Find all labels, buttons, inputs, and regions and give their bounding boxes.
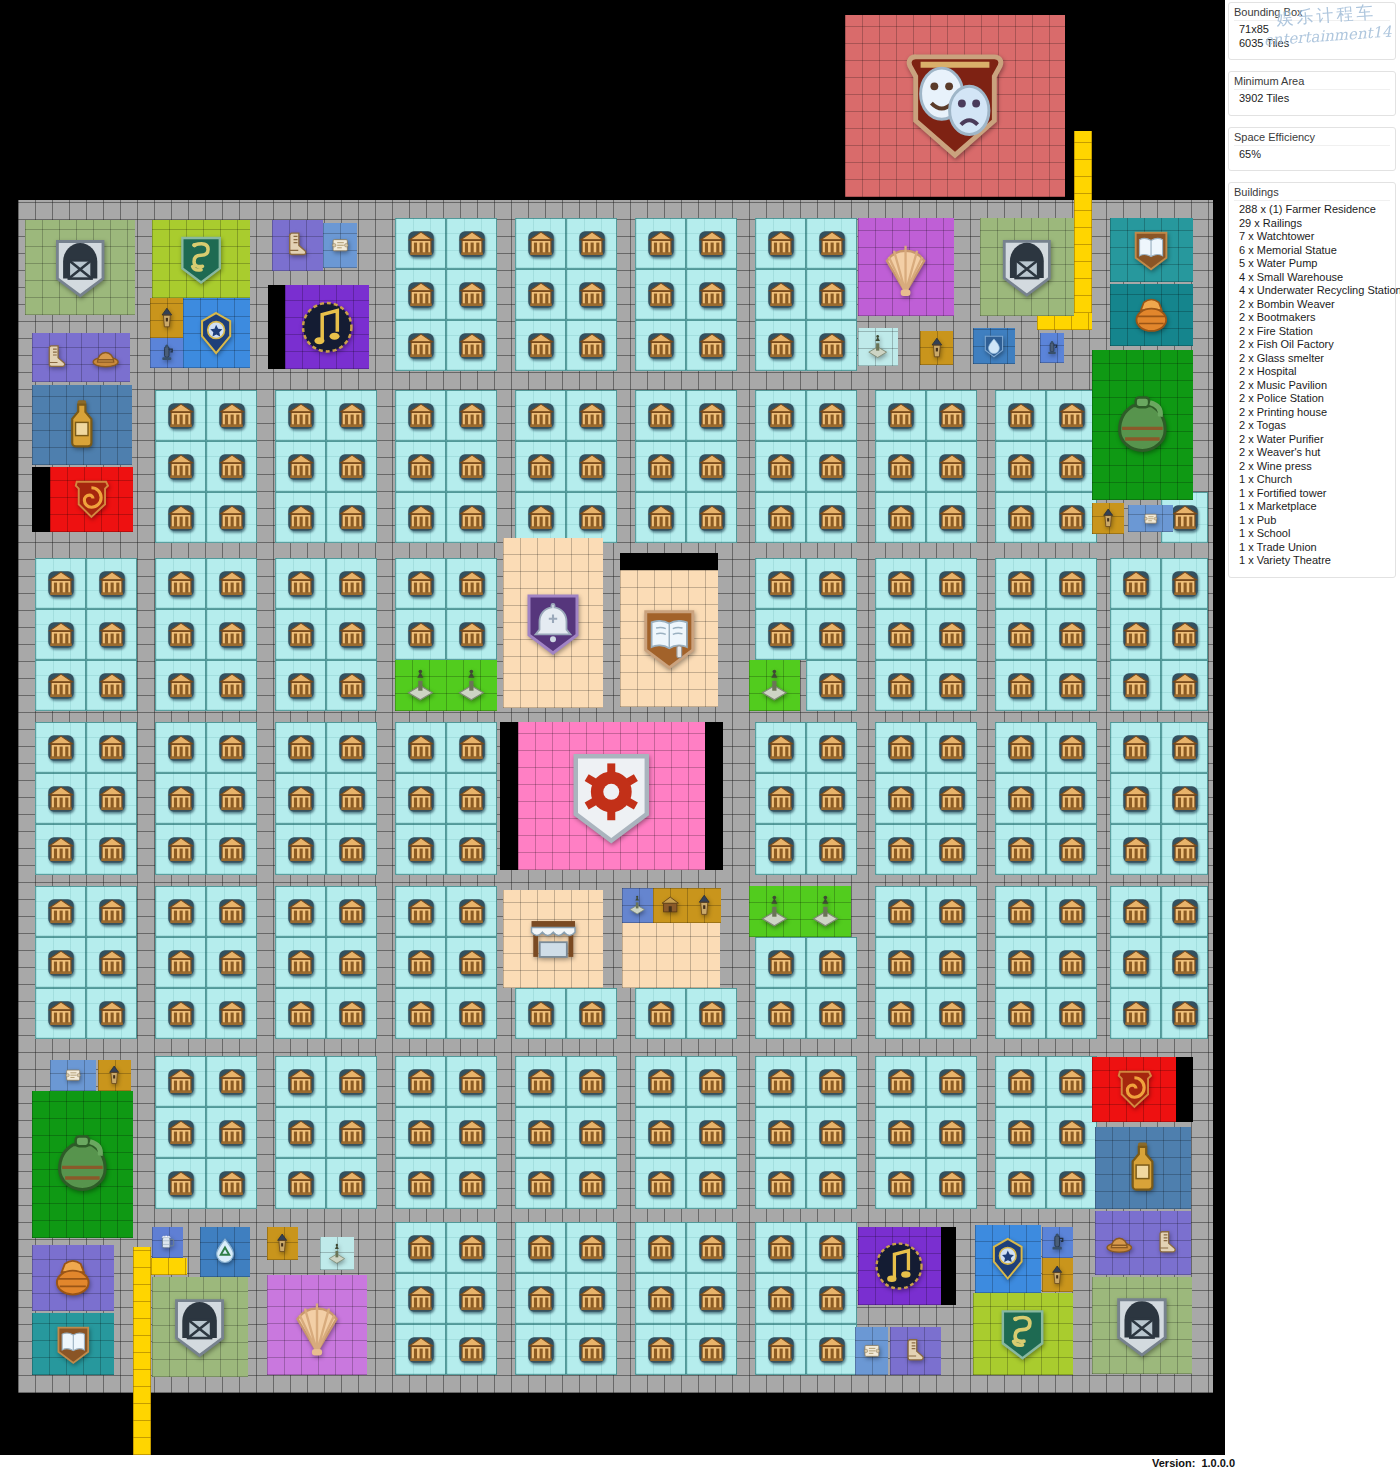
- farmer-residence[interactable]: [155, 609, 206, 660]
- church[interactable]: [503, 538, 603, 708]
- farmer-residence[interactable]: [995, 722, 1046, 773]
- farmer-residence[interactable]: [686, 218, 737, 269]
- farmer-residence[interactable]: [395, 1056, 446, 1107]
- farmer-residence[interactable]: [206, 558, 257, 609]
- farmer-residence[interactable]: [155, 773, 206, 824]
- farmer-residence[interactable]: [515, 390, 566, 441]
- farmer-residence[interactable]: [35, 660, 86, 711]
- marketplace[interactable]: [503, 890, 603, 988]
- farmer-residence[interactable]: [446, 390, 497, 441]
- farmer-residence[interactable]: [515, 1222, 566, 1273]
- farmer-residence[interactable]: [446, 937, 497, 988]
- farmer-residence[interactable]: [566, 1222, 617, 1273]
- farmer-residence[interactable]: [515, 1158, 566, 1209]
- farmer-residence[interactable]: [755, 558, 806, 609]
- farmer-residence[interactable]: [446, 1273, 497, 1324]
- farmer-residence[interactable]: [446, 558, 497, 609]
- farmer-residence[interactable]: [275, 441, 326, 492]
- farmer-residence[interactable]: [395, 1324, 446, 1375]
- farmer-residence[interactable]: [635, 1273, 686, 1324]
- farmer-residence[interactable]: [395, 609, 446, 660]
- farmer-residence[interactable]: [875, 937, 926, 988]
- farmer-residence[interactable]: [806, 441, 857, 492]
- farmer-residence[interactable]: [806, 824, 857, 875]
- farmer-residence[interactable]: [926, 492, 977, 543]
- farmer-residence[interactable]: [206, 390, 257, 441]
- farmer-residence[interactable]: [806, 1324, 857, 1375]
- farmer-residence[interactable]: [1161, 558, 1208, 609]
- farmer-residence[interactable]: [995, 660, 1046, 711]
- farmer-residence[interactable]: [275, 886, 326, 937]
- railings[interactable]: [151, 1258, 187, 1275]
- farmer-residence[interactable]: [35, 886, 86, 937]
- farmer-residence[interactable]: [686, 1222, 737, 1273]
- farmer-residence[interactable]: [1110, 722, 1161, 773]
- farmer-residence[interactable]: [566, 1107, 617, 1158]
- farmer-residence[interactable]: [155, 1107, 206, 1158]
- farmer-residence[interactable]: [875, 886, 926, 937]
- hospital[interactable]: [973, 1293, 1073, 1375]
- water-pump[interactable]: [1042, 1227, 1073, 1258]
- small-warehouse[interactable]: [25, 220, 135, 315]
- farmer-residence[interactable]: [326, 660, 377, 711]
- farmer-residence[interactable]: [1046, 558, 1097, 609]
- farmer-residence[interactable]: [1046, 492, 1097, 543]
- farmer-residence[interactable]: [686, 1107, 737, 1158]
- farmer-residence[interactable]: [566, 441, 617, 492]
- farmer-residence[interactable]: [995, 824, 1046, 875]
- farmer-residence[interactable]: [686, 320, 737, 371]
- farmer-residence[interactable]: [395, 886, 446, 937]
- school[interactable]: [620, 570, 718, 707]
- farmer-residence[interactable]: [35, 722, 86, 773]
- farmer-residence[interactable]: [275, 1107, 326, 1158]
- farmer-residence[interactable]: [755, 492, 806, 543]
- farmer-residence[interactable]: [275, 390, 326, 441]
- farmer-residence[interactable]: [155, 1056, 206, 1107]
- farmer-residence[interactable]: [686, 269, 737, 320]
- printing-house[interactable]: [1110, 218, 1193, 282]
- farmer-residence[interactable]: [86, 722, 137, 773]
- farmer-residence[interactable]: [755, 988, 806, 1039]
- farmer-residence[interactable]: [515, 492, 566, 543]
- farmer-residence[interactable]: [686, 1273, 737, 1324]
- farmer-residence[interactable]: [806, 609, 857, 660]
- weavers-hut[interactable]: [855, 1327, 888, 1375]
- farmer-residence[interactable]: [1110, 773, 1161, 824]
- farmer-residence[interactable]: [755, 1273, 806, 1324]
- small-warehouse[interactable]: [1092, 1277, 1192, 1374]
- farmer-residence[interactable]: [155, 558, 206, 609]
- farmer-residence[interactable]: [515, 218, 566, 269]
- farmer-residence[interactable]: [995, 609, 1046, 660]
- farmer-residence[interactable]: [686, 492, 737, 543]
- farmer-residence[interactable]: [686, 390, 737, 441]
- farmer-residence[interactable]: [755, 390, 806, 441]
- farmer-residence[interactable]: [35, 937, 86, 988]
- farmer-residence[interactable]: [515, 1324, 566, 1375]
- farmer-residence[interactable]: [326, 390, 377, 441]
- farmer-residence[interactable]: [875, 824, 926, 875]
- farmer-residence[interactable]: [275, 824, 326, 875]
- farmer-residence[interactable]: [635, 390, 686, 441]
- weavers-hut[interactable]: [50, 1060, 96, 1091]
- pub-tankard[interactable]: [152, 1227, 183, 1258]
- farmer-residence[interactable]: [806, 218, 857, 269]
- farmer-residence[interactable]: [326, 492, 377, 543]
- farmer-residence[interactable]: [275, 1158, 326, 1209]
- trade-union[interactable]: [518, 722, 705, 870]
- farmer-residence[interactable]: [275, 722, 326, 773]
- small-warehouse[interactable]: [152, 1277, 248, 1377]
- farmer-residence[interactable]: [806, 492, 857, 543]
- farmer-residence[interactable]: [995, 773, 1046, 824]
- memorial-statue[interactable]: [395, 660, 446, 711]
- farmer-residence[interactable]: [86, 886, 137, 937]
- farmer-residence[interactable]: [806, 1273, 857, 1324]
- farmer-residence[interactable]: [566, 988, 617, 1039]
- farmer-residence[interactable]: [755, 824, 806, 875]
- farmer-residence[interactable]: [995, 937, 1046, 988]
- farmer-residence[interactable]: [755, 937, 806, 988]
- watchtower[interactable]: [920, 331, 953, 365]
- farmer-residence[interactable]: [1046, 773, 1097, 824]
- farmer-residence[interactable]: [275, 492, 326, 543]
- farmer-residence[interactable]: [875, 1056, 926, 1107]
- farmer-residence[interactable]: [446, 1324, 497, 1375]
- bombin-weaver[interactable]: [81, 333, 130, 382]
- memorial-statue[interactable]: [622, 888, 653, 923]
- farmer-residence[interactable]: [806, 1107, 857, 1158]
- farmer-residence[interactable]: [806, 269, 857, 320]
- watchtower[interactable]: [98, 1060, 131, 1091]
- farmer-residence[interactable]: [86, 937, 137, 988]
- farmer-residence[interactable]: [875, 609, 926, 660]
- farmer-residence[interactable]: [326, 609, 377, 660]
- farmer-residence[interactable]: [806, 722, 857, 773]
- farmer-residence[interactable]: [806, 773, 857, 824]
- farmer-residence[interactable]: [755, 1324, 806, 1375]
- farmer-residence[interactable]: [635, 492, 686, 543]
- hospital[interactable]: [152, 220, 250, 298]
- farmer-residence[interactable]: [875, 1107, 926, 1158]
- farmer-residence[interactable]: [1046, 1158, 1097, 1209]
- bootmakers[interactable]: [272, 220, 323, 271]
- farmer-residence[interactable]: [326, 441, 377, 492]
- farmer-residence[interactable]: [1161, 988, 1208, 1039]
- farmer-residence[interactable]: [515, 441, 566, 492]
- farmer-residence[interactable]: [515, 269, 566, 320]
- farmer-residence[interactable]: [395, 937, 446, 988]
- farmer-residence[interactable]: [326, 988, 377, 1039]
- farmer-residence[interactable]: [155, 390, 206, 441]
- farmer-residence[interactable]: [35, 988, 86, 1039]
- farmer-residence[interactable]: [395, 269, 446, 320]
- farmer-residence[interactable]: [515, 320, 566, 371]
- bootmakers[interactable]: [32, 333, 81, 382]
- farmer-residence[interactable]: [275, 1056, 326, 1107]
- farmer-residence[interactable]: [995, 492, 1046, 543]
- farmer-residence[interactable]: [326, 1158, 377, 1209]
- fire-station[interactable]: [1092, 1057, 1176, 1122]
- farmer-residence[interactable]: [566, 390, 617, 441]
- farmer-residence[interactable]: [326, 1107, 377, 1158]
- fish-oil-factory[interactable]: [32, 385, 132, 465]
- farmer-residence[interactable]: [86, 609, 137, 660]
- railings[interactable]: [133, 1247, 151, 1455]
- farmer-residence[interactable]: [155, 937, 206, 988]
- farmer-residence[interactable]: [806, 988, 857, 1039]
- farmer-residence[interactable]: [755, 1158, 806, 1209]
- farmer-residence[interactable]: [515, 1056, 566, 1107]
- farmer-residence[interactable]: [755, 722, 806, 773]
- farmer-residence[interactable]: [1046, 824, 1097, 875]
- farmer-residence[interactable]: [326, 558, 377, 609]
- farmer-residence[interactable]: [86, 988, 137, 1039]
- farmer-residence[interactable]: [1161, 937, 1208, 988]
- farmer-residence[interactable]: [446, 1107, 497, 1158]
- farmer-residence[interactable]: [446, 773, 497, 824]
- farmer-residence[interactable]: [926, 773, 977, 824]
- farmer-residence[interactable]: [1110, 824, 1161, 875]
- farmer-residence[interactable]: [206, 609, 257, 660]
- police-station[interactable]: [183, 298, 250, 368]
- farmer-residence[interactable]: [395, 824, 446, 875]
- farmer-residence[interactable]: [515, 1107, 566, 1158]
- farmer-residence[interactable]: [635, 1107, 686, 1158]
- farmer-residence[interactable]: [1046, 660, 1097, 711]
- farmer-residence[interactable]: [395, 320, 446, 371]
- farmer-residence[interactable]: [275, 558, 326, 609]
- farmer-residence[interactable]: [806, 1056, 857, 1107]
- farmer-residence[interactable]: [206, 773, 257, 824]
- police-station[interactable]: [975, 1225, 1041, 1293]
- farmer-residence[interactable]: [566, 1324, 617, 1375]
- farmer-residence[interactable]: [995, 441, 1046, 492]
- water-pump[interactable]: [1040, 333, 1064, 363]
- farmer-residence[interactable]: [86, 558, 137, 609]
- farmer-residence[interactable]: [755, 773, 806, 824]
- farmer-residence[interactable]: [926, 937, 977, 988]
- farmer-residence[interactable]: [395, 1107, 446, 1158]
- farmer-residence[interactable]: [926, 558, 977, 609]
- farmer-residence[interactable]: [926, 988, 977, 1039]
- memorial-statue[interactable]: [800, 886, 851, 937]
- farmer-residence[interactable]: [446, 441, 497, 492]
- farmer-residence[interactable]: [875, 390, 926, 441]
- farmer-residence[interactable]: [875, 558, 926, 609]
- farmer-residence[interactable]: [446, 218, 497, 269]
- farmer-residence[interactable]: [395, 1158, 446, 1209]
- farmer-residence[interactable]: [206, 1056, 257, 1107]
- farmer-residence[interactable]: [635, 1222, 686, 1273]
- farmer-residence[interactable]: [875, 988, 926, 1039]
- farmer-residence[interactable]: [395, 773, 446, 824]
- farmer-residence[interactable]: [875, 773, 926, 824]
- farmer-residence[interactable]: [995, 1056, 1046, 1107]
- farmer-residence[interactable]: [995, 1107, 1046, 1158]
- farmer-residence[interactable]: [1046, 1107, 1097, 1158]
- weavers-hut[interactable]: [1128, 505, 1173, 532]
- farmer-residence[interactable]: [806, 937, 857, 988]
- watchtower[interactable]: [1042, 1258, 1073, 1292]
- bootmakers[interactable]: [1143, 1211, 1191, 1275]
- farmer-residence[interactable]: [395, 492, 446, 543]
- farmer-residence[interactable]: [1046, 886, 1097, 937]
- farmer-residence[interactable]: [995, 988, 1046, 1039]
- farmer-residence[interactable]: [1161, 660, 1208, 711]
- watchtower[interactable]: [687, 888, 721, 923]
- farmer-residence[interactable]: [686, 1324, 737, 1375]
- memorial-statue[interactable]: [320, 1237, 354, 1270]
- farmer-residence[interactable]: [1110, 886, 1161, 937]
- farmer-residence[interactable]: [395, 988, 446, 1039]
- farmer-residence[interactable]: [926, 824, 977, 875]
- printing-house[interactable]: [32, 1313, 114, 1375]
- bombin-weaver[interactable]: [32, 1245, 114, 1311]
- farmer-residence[interactable]: [1046, 937, 1097, 988]
- farmer-residence[interactable]: [275, 660, 326, 711]
- farmer-residence[interactable]: [446, 1056, 497, 1107]
- farmer-residence[interactable]: [806, 1222, 857, 1273]
- farmer-residence[interactable]: [566, 1056, 617, 1107]
- bootmakers[interactable]: [890, 1327, 941, 1375]
- farmer-residence[interactable]: [275, 937, 326, 988]
- farmer-residence[interactable]: [1046, 1056, 1097, 1107]
- farmer-residence[interactable]: [1110, 609, 1161, 660]
- farmer-residence[interactable]: [755, 441, 806, 492]
- farmer-residence[interactable]: [635, 218, 686, 269]
- farmer-residence[interactable]: [395, 722, 446, 773]
- farmer-residence[interactable]: [635, 988, 686, 1039]
- farmer-residence[interactable]: [206, 660, 257, 711]
- farmer-residence[interactable]: [515, 988, 566, 1039]
- farmer-residence[interactable]: [566, 1158, 617, 1209]
- farmer-residence[interactable]: [326, 773, 377, 824]
- farmer-residence[interactable]: [926, 886, 977, 937]
- farmer-residence[interactable]: [275, 988, 326, 1039]
- farmer-residence[interactable]: [446, 1158, 497, 1209]
- farmer-residence[interactable]: [155, 722, 206, 773]
- farmer-residence[interactable]: [446, 320, 497, 371]
- farmer-residence[interactable]: [566, 320, 617, 371]
- farmer-residence[interactable]: [446, 824, 497, 875]
- farmer-residence[interactable]: [875, 660, 926, 711]
- variety-theatre[interactable]: [845, 15, 1065, 197]
- farmer-residence[interactable]: [635, 441, 686, 492]
- farmer-residence[interactable]: [86, 660, 137, 711]
- farmer-residence[interactable]: [926, 441, 977, 492]
- farmer-residence[interactable]: [875, 722, 926, 773]
- farmer-residence[interactable]: [806, 1158, 857, 1209]
- farmer-residence[interactable]: [206, 722, 257, 773]
- farmer-residence[interactable]: [1046, 441, 1097, 492]
- farmer-residence[interactable]: [395, 1222, 446, 1273]
- bombin-weaver[interactable]: [1095, 1211, 1143, 1275]
- watchtower[interactable]: [150, 298, 183, 338]
- pub[interactable]: [622, 923, 720, 988]
- farmer-residence[interactable]: [1110, 660, 1161, 711]
- farmer-residence[interactable]: [446, 722, 497, 773]
- farmer-residence[interactable]: [395, 390, 446, 441]
- farmer-residence[interactable]: [155, 988, 206, 1039]
- farmer-residence[interactable]: [206, 824, 257, 875]
- farmer-residence[interactable]: [1110, 937, 1161, 988]
- memorial-statue[interactable]: [858, 328, 898, 366]
- memorial-statue[interactable]: [749, 886, 800, 937]
- farmer-residence[interactable]: [755, 1056, 806, 1107]
- wine-press[interactable]: [1092, 350, 1193, 500]
- farmer-residence[interactable]: [86, 824, 137, 875]
- farmer-residence[interactable]: [155, 886, 206, 937]
- farmer-residence[interactable]: [35, 773, 86, 824]
- farmer-residence[interactable]: [1161, 824, 1208, 875]
- memorial-statue[interactable]: [446, 660, 497, 711]
- farmer-residence[interactable]: [515, 1273, 566, 1324]
- city-map-canvas[interactable]: [0, 0, 1225, 1455]
- farmer-residence[interactable]: [635, 1056, 686, 1107]
- fortified-tower[interactable]: [653, 888, 687, 923]
- farmer-residence[interactable]: [566, 1273, 617, 1324]
- farmer-residence[interactable]: [206, 441, 257, 492]
- farmer-residence[interactable]: [206, 937, 257, 988]
- underwater-recycling-station[interactable]: [858, 218, 954, 316]
- memorial-statue[interactable]: [749, 660, 800, 711]
- farmer-residence[interactable]: [1161, 773, 1208, 824]
- farmer-residence[interactable]: [686, 988, 737, 1039]
- farmer-residence[interactable]: [635, 320, 686, 371]
- farmer-residence[interactable]: [635, 269, 686, 320]
- farmer-residence[interactable]: [446, 609, 497, 660]
- farmer-residence[interactable]: [755, 320, 806, 371]
- farmer-residence[interactable]: [1161, 722, 1208, 773]
- underwater-recycling-station[interactable]: [267, 1275, 367, 1375]
- farmer-residence[interactable]: [395, 441, 446, 492]
- farmer-residence[interactable]: [1161, 886, 1208, 937]
- farmer-residence[interactable]: [155, 441, 206, 492]
- farmer-residence[interactable]: [1046, 722, 1097, 773]
- farmer-residence[interactable]: [326, 1056, 377, 1107]
- watchtower[interactable]: [1092, 503, 1124, 534]
- farmer-residence[interactable]: [926, 1107, 977, 1158]
- farmer-residence[interactable]: [1046, 390, 1097, 441]
- water-pump[interactable]: [150, 338, 183, 368]
- farmer-residence[interactable]: [326, 937, 377, 988]
- farmer-residence[interactable]: [686, 441, 737, 492]
- farmer-residence[interactable]: [995, 1158, 1046, 1209]
- music-pavilion[interactable]: [285, 285, 369, 369]
- farmer-residence[interactable]: [755, 609, 806, 660]
- farmer-residence[interactable]: [635, 1158, 686, 1209]
- farmer-residence[interactable]: [35, 824, 86, 875]
- farmer-residence[interactable]: [806, 660, 857, 711]
- farmer-residence[interactable]: [206, 1107, 257, 1158]
- farmer-residence[interactable]: [926, 390, 977, 441]
- farmer-residence[interactable]: [806, 558, 857, 609]
- farmer-residence[interactable]: [875, 1158, 926, 1209]
- farmer-residence[interactable]: [926, 660, 977, 711]
- farmer-residence[interactable]: [995, 558, 1046, 609]
- farmer-residence[interactable]: [1161, 609, 1208, 660]
- farmer-residence[interactable]: [755, 1222, 806, 1273]
- farmer-residence[interactable]: [446, 492, 497, 543]
- farmer-residence[interactable]: [326, 886, 377, 937]
- farmer-residence[interactable]: [155, 824, 206, 875]
- farmer-residence[interactable]: [155, 492, 206, 543]
- farmer-residence[interactable]: [806, 390, 857, 441]
- farmer-residence[interactable]: [926, 722, 977, 773]
- farmer-residence[interactable]: [446, 886, 497, 937]
